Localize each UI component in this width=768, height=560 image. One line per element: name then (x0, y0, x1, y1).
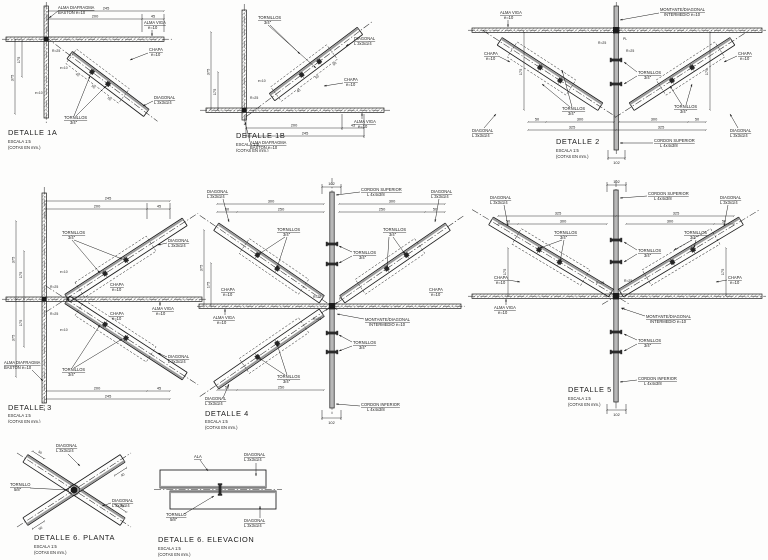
title-block: DETALLE 4 ESCALA 1:5 (COTAS EN mm.) (205, 409, 249, 430)
column-member (44, 6, 48, 118)
dimension-top-left: 325 50 300 (498, 211, 616, 225)
dim-label: 40 (296, 88, 302, 94)
dimension-left-vertical: 175 375 (199, 230, 212, 306)
label-chapa-right: CHAPA e=10 (429, 287, 443, 297)
diagonal-member: 40 50 50 (38, 30, 163, 132)
detalle-6-planta-drawing: 50 40 50 40 DIAGONAL L 3x3x1/4 DIAGONAL … (8, 440, 150, 560)
label-tornillos-upper-left: TORNILLOS 3/4" (259, 227, 300, 268)
label-cordon-superior: CORDON SUPERIOR L 4x4x3/8 (620, 191, 689, 201)
dimension-bottom-montante: 102 (607, 404, 626, 417)
svg-text:e=10: e=10 (346, 82, 356, 87)
label-diagonal-top: DIAGONAL L 3x3x1/4 (56, 443, 80, 466)
dim-label: 40 (120, 472, 125, 477)
svg-text:175: 175 (518, 69, 523, 76)
label-diagonal-right: DIAGONAL L 3x3x1/4 (102, 498, 134, 508)
label-chapa: CHAPA e=10 (324, 77, 358, 87)
thickness-note: e=10 (60, 270, 68, 274)
detail-units: (COTAS EN mm.) (8, 145, 41, 150)
label-montante: MONTANTE/DIAGONAL INTERMEDIO e=10 (621, 308, 692, 324)
radius-note: R=25 (596, 281, 604, 285)
svg-text:175: 175 (704, 69, 709, 76)
label-tornillos-montante-upper: TORNILLOS 3/4" (339, 246, 376, 263)
detail-title: DETALLE 2 (556, 137, 600, 146)
svg-text:e=10: e=10 (112, 287, 122, 292)
detail-title: DETALLE 5 (568, 385, 612, 394)
svg-text:5/8": 5/8" (14, 487, 22, 492)
label-chapa-lower: CHAPA e=10 (110, 311, 124, 321)
label-tornillos-lower-left: TORNILLOS 3/4" (259, 344, 300, 384)
detail-units: (COTAS EN mm.) (568, 402, 601, 407)
svg-text:375: 375 (11, 257, 16, 264)
bolt-icon (71, 487, 78, 494)
svg-text:3/4": 3/4" (359, 345, 367, 350)
dimension-left: 175 375 (10, 39, 23, 114)
dimension-right-vertical: 175 (720, 248, 726, 296)
detalle-1b-drawing: 40 50 50 200 45 245 175 375 TORNILLOS 3/… (196, 2, 392, 152)
svg-text:e=10: e=10 (740, 56, 750, 61)
dim-label: 50 (37, 450, 42, 455)
label-diagonal: DIAGONAL L 3x3x1/4 (346, 36, 376, 46)
svg-text:375: 375 (206, 69, 211, 76)
column-member (242, 10, 246, 120)
svg-text:300: 300 (667, 219, 674, 224)
dimension-bottom: 200 45 245 (46, 386, 170, 400)
svg-text:3/4": 3/4" (644, 75, 652, 80)
junction-node (242, 108, 246, 112)
label-diagonal-top: DIAGONAL L 3x3x1/4 (244, 452, 266, 476)
label-chapa-left: CHAPA e=10 (494, 275, 520, 285)
label-alma-viga: ALMA VIGA e=10 (354, 113, 376, 129)
svg-text:L 4x4x3/8: L 4x4x3/8 (367, 192, 385, 197)
svg-text:245: 245 (105, 196, 112, 201)
svg-text:375: 375 (11, 335, 16, 342)
label-chapa-left: CHAPA e=10 (221, 287, 235, 297)
svg-text:L 3x3x1/4: L 3x3x1/4 (720, 200, 738, 205)
radius-note: R=25 (50, 285, 58, 289)
svg-text:3/4": 3/4" (690, 235, 698, 240)
detail-scale: ESCALA 1:5 (8, 139, 31, 144)
svg-text:e=10: e=10 (504, 15, 514, 20)
detail-title: DETALLE 6. ELEVACION (158, 535, 254, 544)
dimension-left-vertical: 175 (518, 32, 524, 110)
svg-text:L 3x3x1/4: L 3x3x1/4 (154, 100, 172, 105)
svg-text:102: 102 (328, 181, 335, 186)
label-tornillos-montante-lower: TORNILLOS 3/4" (339, 335, 376, 351)
label-alma-viga: ALMA VIGA e=10 (144, 20, 166, 36)
svg-text:3/4": 3/4" (389, 232, 397, 237)
thickness-note: e=10 (258, 79, 266, 83)
svg-text:102: 102 (613, 412, 620, 417)
radius-note: R=25 (313, 295, 321, 299)
label-cordon-superior: CORDON SUPERIOR L 4x4x3/8 (336, 187, 402, 197)
svg-text:e=10: e=10 (498, 310, 508, 315)
detail-units: (COTAS EN mm.) (158, 552, 191, 557)
label-alma-viga: ALMA VIGA e=10 (213, 309, 235, 325)
pl-note: PL (339, 297, 343, 301)
detalle-1a-drawing: 40 50 50 245 200 45 175 375 ALMA DIAFRAG… (2, 2, 194, 152)
svg-text:L 3x3x1/4: L 3x3x1/4 (205, 401, 223, 406)
svg-text:e=10: e=10 (486, 56, 496, 61)
title-block: DETALLE 6. PLANTA ESCALA 1:5 (COTAS EN m… (34, 533, 115, 555)
svg-text:3/4": 3/4" (68, 372, 76, 377)
svg-text:3/4": 3/4" (283, 232, 291, 237)
title-block: DETALLE 6. ELEVACION ESCALA 1:5 (COTAS E… (158, 535, 254, 557)
label-ala: ALA (194, 454, 208, 471)
svg-text:BASTON e=10: BASTON e=10 (58, 10, 86, 15)
label-alma-diafragma: ALMA DIAFRAGMA BASTON e=10 (4, 360, 43, 381)
detalle-5-drawing: 102 325 50 300 325 300 50 175 175 102 CO… (468, 178, 766, 430)
detail-units: (COTAS EN mm.) (205, 425, 238, 430)
svg-text:175: 175 (16, 57, 21, 64)
thickness-note: e=10 (35, 91, 43, 95)
radius-note: R=25 (624, 279, 632, 283)
svg-text:e=10: e=10 (151, 52, 161, 57)
detail-scale: ESCALA 1:5 (556, 148, 579, 153)
pl-note: PL (622, 307, 626, 311)
svg-text:175: 175 (212, 89, 217, 96)
svg-text:175: 175 (206, 282, 211, 289)
svg-text:102: 102 (613, 160, 620, 165)
title-block: DETALLE 2 ESCALA 1:5 (COTAS EN mm.) (556, 137, 600, 159)
detalle-4-drawing: 102 300 50 250 300 250 50 175 375 50 250… (197, 178, 465, 430)
svg-text:e=10: e=10 (217, 320, 227, 325)
svg-text:300: 300 (560, 219, 567, 224)
detail-scale: ESCALA 1:5 (236, 142, 259, 147)
svg-text:L 4x4x3/8: L 4x4x3/8 (367, 407, 385, 412)
detail-scale: ESCALA 1:5 (8, 413, 31, 418)
svg-text:INTERMEDIO e=10: INTERMEDIO e=10 (369, 322, 406, 327)
title-block: DETALLE 1A ESCALA 1:5 (COTAS EN mm.) (8, 128, 57, 150)
svg-text:375: 375 (10, 75, 15, 82)
svg-text:3/4": 3/4" (568, 111, 576, 116)
diagonal-member-left (478, 23, 622, 125)
svg-text:102: 102 (613, 179, 620, 184)
svg-text:250: 250 (379, 207, 386, 212)
svg-text:e=10: e=10 (431, 292, 441, 297)
svg-text:300: 300 (577, 117, 584, 122)
radius-note: R=25 (313, 317, 321, 321)
svg-text:3/4": 3/4" (68, 235, 76, 240)
bar-top (160, 470, 266, 488)
svg-text:325: 325 (658, 125, 665, 130)
label-cordon-inferior: CORDON INFERIOR L 4x4x3/8 (336, 402, 400, 412)
label-tornillos-upper-right: TORNILLOS 3/4" (383, 227, 406, 268)
dim-label: 40 (75, 72, 81, 78)
svg-text:200: 200 (92, 14, 99, 19)
svg-text:e=10: e=10 (358, 124, 368, 129)
label-diagonal-upper-left: DIAGONAL L 3x3x1/4 (207, 189, 229, 222)
detail-units: (COTAS EN mm.) (34, 550, 67, 555)
svg-text:250: 250 (278, 207, 285, 212)
svg-text:102: 102 (328, 420, 335, 425)
diagonal-member-upper-right (321, 208, 465, 318)
radius-note: R=25 (52, 49, 60, 53)
pl-note: PL (623, 37, 627, 41)
svg-text:175: 175 (18, 272, 23, 279)
svg-text:250: 250 (278, 385, 285, 390)
detail-units: (COTAS EN mm.) (556, 154, 589, 159)
svg-text:L 3x3x1/4: L 3x3x1/4 (56, 448, 74, 453)
title-block: DETALLE 5 ESCALA 1:5 (COTAS EN mm.) (568, 385, 612, 407)
svg-text:e=10: e=10 (112, 316, 122, 321)
detail-scale: ESCALA 1:5 (568, 396, 591, 401)
svg-text:L 3x3x1/4: L 3x3x1/4 (168, 243, 186, 248)
detail-title: DETALLE 1A (8, 128, 57, 137)
svg-text:e=10: e=10 (148, 25, 158, 30)
detail-scale: ESCALA 1:5 (205, 419, 228, 424)
detail-title: DETALLE 6. PLANTA (34, 533, 115, 542)
dim-label: 50 (107, 96, 113, 102)
svg-text:L 3x3x1/4: L 3x3x1/4 (490, 200, 508, 205)
label-chapa-right: CHAPA e=10 (724, 51, 752, 62)
junction-node (42, 297, 46, 301)
svg-text:200: 200 (291, 123, 298, 128)
label-alma-viga: ALMA VIGA e=10 (494, 299, 516, 315)
dimension-left-vertical: 175 (502, 248, 508, 296)
svg-text:L 4x4x3/8: L 4x4x3/8 (654, 196, 672, 201)
svg-text:245: 245 (103, 6, 110, 11)
svg-text:3/4": 3/4" (560, 235, 568, 240)
svg-text:5/8": 5/8" (170, 517, 178, 522)
dimension-left: 175 375 (206, 32, 219, 110)
label-tornillo: TORNILLO 5/8" (10, 482, 68, 492)
dimension-top: 245 200 45 (46, 196, 170, 220)
detail-title: DETALLE 1B (236, 131, 285, 140)
label-tornillos-montante-lower: TORNILLOS 3/4" (624, 334, 661, 351)
svg-text:50: 50 (695, 117, 700, 122)
svg-text:175: 175 (720, 269, 725, 276)
radius-note: R=25 (598, 41, 606, 45)
label-diagonal-lower: DIAGONAL L 3x3x1/4 (158, 353, 190, 364)
svg-text:L 3x3x1/4: L 3x3x1/4 (244, 523, 262, 528)
junction-node (613, 27, 619, 33)
label-tornillos-upper: TORNILLOS 3/4" (62, 230, 122, 273)
svg-text:e=10: e=10 (496, 280, 506, 285)
drawing-sheet: 40 50 50 245 200 45 175 375 ALMA DIAFRAG… (0, 0, 768, 560)
svg-text:245: 245 (302, 131, 309, 136)
diagonal-member-upper-left (197, 208, 343, 318)
svg-text:L 3x3x1/4: L 3x3x1/4 (168, 359, 186, 364)
dim-label: 50 (91, 84, 97, 90)
label-chapa-left: CHAPA e=10 (484, 51, 510, 62)
svg-text:INTERMEDIO e=10: INTERMEDIO e=10 (650, 319, 687, 324)
label-tornillos-montante: TORNILLOS 3/4" (624, 62, 661, 84)
radius-note: R=25 (626, 49, 634, 53)
detalle-3-drawing: 245 200 45 200 45 245 175 375 175 375 TO… (2, 185, 208, 423)
label-alma-viga: ALMA VIGA e=10 (500, 10, 522, 27)
svg-text:200: 200 (94, 386, 101, 391)
beam-member (6, 37, 164, 41)
svg-text:50: 50 (535, 117, 540, 122)
svg-text:45: 45 (157, 386, 161, 391)
svg-text:L 3x3x1/4: L 3x3x1/4 (730, 133, 748, 138)
label-cordon: CORDON SUPERIOR L 4x4x3/8 (620, 138, 695, 148)
svg-text:200: 200 (94, 204, 101, 209)
svg-text:L 3x3x1/4: L 3x3x1/4 (112, 503, 130, 508)
label-diagonal: DIAGONAL L 3x3x1/4 (143, 95, 176, 106)
svg-text:L 3x3x1/4: L 3x3x1/4 (354, 41, 372, 46)
svg-text:e=10: e=10 (730, 280, 740, 285)
label-diagonal-left: DIAGONAL L 3x3x1/4 (472, 114, 496, 138)
thickness-note: e=10 (60, 66, 68, 70)
label-diagonal-right: DIAGONAL L 3x3x1/4 (730, 114, 752, 138)
label-tornillos-right: TORNILLOS 3/4" (670, 84, 697, 114)
label-alma-diafragma: ALMA DIAFRAGMA BASTON e=10 (49, 5, 95, 18)
svg-text:3/4": 3/4" (283, 379, 291, 384)
detail-scale: ESCALA 1:5 (34, 544, 57, 549)
radius-note: R=25 (50, 312, 58, 316)
dimension-bottom-montante: 102 (322, 410, 341, 425)
svg-text:e=10: e=10 (156, 311, 166, 316)
detalle-6-elevacion-drawing: ALA DIAGONAL L 3x3x1/4 TORNILLO 5/8" DIA… (152, 448, 284, 560)
detail-units: (COTAS EN mm.) (236, 148, 269, 152)
svg-text:3/4": 3/4" (644, 253, 652, 258)
dimension-top-left: 300 50 250 (217, 199, 324, 213)
svg-text:325: 325 (555, 211, 562, 216)
svg-text:L 3x3x1/4: L 3x3x1/4 (244, 457, 262, 462)
label-montante: MONTANTE/DIAGONAL INTERMEDIO e=10 (337, 314, 411, 327)
svg-text:45: 45 (157, 204, 161, 209)
label-alma-viga: ALMA VIGA e=10 (152, 302, 174, 316)
detail-title: DETALLE 3 (8, 403, 52, 412)
dimension-montante: 102 (608, 150, 625, 165)
svg-text:175: 175 (18, 320, 23, 327)
dimension-top-right: 300 250 50 (339, 199, 445, 213)
svg-text:50: 50 (225, 385, 230, 390)
svg-text:3/4": 3/4" (644, 343, 652, 348)
svg-text:245: 245 (105, 394, 112, 399)
thickness-note: e=10 (60, 328, 68, 332)
svg-text:e=10: e=10 (223, 292, 233, 297)
dim-label: 50 (314, 74, 320, 80)
montante-member (330, 192, 334, 408)
svg-text:L 3x3x1/4: L 3x3x1/4 (207, 194, 225, 199)
detail-units: (COTAS EN mm.) (8, 419, 41, 423)
svg-text:3/4": 3/4" (359, 255, 367, 260)
label-chapa-right: CHAPA e=10 (716, 275, 742, 285)
svg-text:3/4": 3/4" (70, 120, 78, 125)
svg-text:L 4x4x3/8: L 4x4x3/8 (660, 143, 678, 148)
svg-text:300: 300 (389, 199, 396, 204)
label-cordon-inferior: CORDON INFERIOR L 4x4x3/8 (620, 376, 677, 386)
svg-text:325: 325 (569, 125, 576, 130)
svg-text:BASTON e=10: BASTON e=10 (4, 365, 32, 370)
label-tornillos-montante-upper: TORNILLOS 3/4" (624, 242, 661, 262)
dimension-top-right: 325 300 50 (616, 211, 734, 225)
svg-text:3/4": 3/4" (264, 20, 272, 25)
title-block: DETALLE 3 ESCALA 1:5 (COTAS EN mm.) (8, 403, 52, 423)
diagonal-member-lower-left (197, 294, 343, 404)
radius-note: R=25 (250, 96, 258, 100)
detalle-2-drawing: 175 175 50 300 300 50 325 325 102 ALMA V… (468, 2, 766, 166)
dim-label: 50 (38, 526, 43, 531)
detail-scale: ESCALA 1:5 (158, 546, 181, 551)
svg-text:3/4": 3/4" (680, 109, 688, 114)
svg-text:L 4x4x3/8: L 4x4x3/8 (644, 381, 662, 386)
label-diagonal-upper: DIAGONAL L 3x3x1/4 (158, 238, 190, 248)
label-tornillos: TORNILLOS 3/4" (258, 15, 316, 68)
svg-text:325: 325 (673, 211, 680, 216)
svg-text:L 3x3x1/4: L 3x3x1/4 (472, 133, 490, 138)
detail-title: DETALLE 4 (205, 409, 249, 418)
svg-text:300: 300 (651, 117, 658, 122)
svg-text:300: 300 (268, 199, 275, 204)
dimension-bottom-left: 50 250 (217, 385, 324, 391)
label-chapa: CHAPA e=10 (130, 47, 163, 60)
svg-text:45: 45 (151, 14, 155, 19)
dim-label: 50 (332, 61, 338, 67)
dimension-right-vertical: 175 (704, 32, 710, 110)
beam-member (6, 297, 202, 301)
svg-text:L 3x3x1/4: L 3x3x1/4 (431, 194, 449, 199)
svg-text:375: 375 (199, 265, 204, 272)
label-montante: MONTANTE/DIAGONAL INTERMEDIO e=10 (620, 7, 706, 20)
svg-text:INTERMEDIO e=10: INTERMEDIO e=10 (664, 12, 701, 17)
beam-member (206, 108, 384, 112)
svg-text:ALA: ALA (194, 454, 202, 459)
label-diagonal-upper-right: DIAGONAL L 3x3x1/4 (431, 189, 453, 222)
label-chapa-upper: CHAPA e=10 (110, 282, 124, 292)
